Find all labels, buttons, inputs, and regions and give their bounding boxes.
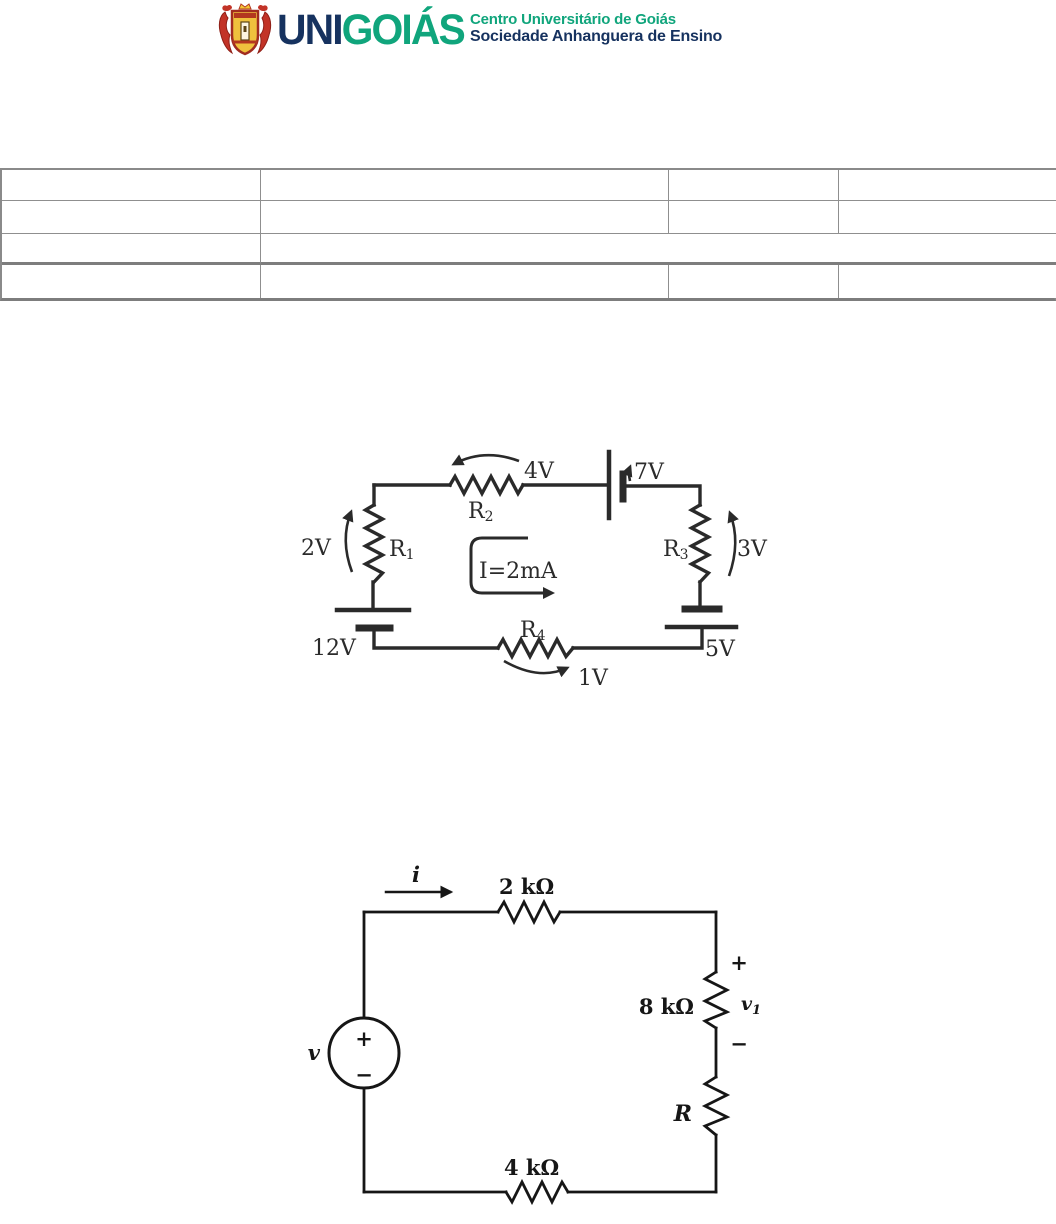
table-cell-r4c4 — [839, 265, 1056, 298]
label-r4: R4 — [520, 618, 546, 644]
university-crest-icon — [215, 2, 275, 59]
resistor-r — [705, 1077, 727, 1135]
circuit-diagram-kvl: 2V 4V 7V 3V 12V 1V 5V I=2mA R1 R2 R3 R4 — [295, 448, 775, 694]
arrow-2v — [346, 512, 352, 572]
org-name-line2: Sociedade Anhanguera de Ensino — [470, 28, 722, 45]
table-cell-r2c2 — [261, 201, 669, 234]
label-loop-current: I=2mA — [479, 559, 558, 584]
label-v1: v1 — [741, 993, 761, 1018]
label-voltage-3v: 3V — [737, 537, 768, 562]
label-r1: R1 — [389, 537, 415, 563]
label-2k: 2 kΩ — [499, 874, 554, 899]
brand-wordmark: UNIGOIÁS — [277, 7, 464, 53]
label-v1-minus: − — [730, 1031, 748, 1056]
document-page: UNIGOIÁS Centro Universitário de Goiás S… — [0, 0, 1056, 1224]
table-cell-r1c2 — [261, 170, 669, 201]
table-cell-r3c1 — [2, 234, 261, 265]
label-voltage-4v: 4V — [524, 459, 555, 484]
table-cell-r2c1 — [2, 201, 261, 234]
resistor-r3 — [692, 505, 709, 582]
circuit-diagram-source: i 2 kΩ + 8 kΩ v1 − R 4 kΩ v + − — [300, 860, 770, 1212]
label-voltage-2v: 2V — [301, 536, 332, 561]
label-source-plus: + — [355, 1026, 373, 1051]
table-cell-r4c1 — [2, 265, 261, 298]
brand-goias: GOIÁS — [342, 6, 464, 54]
label-source-minus: − — [355, 1062, 373, 1087]
resistor-r1 — [366, 505, 383, 582]
resistor-2k — [498, 902, 560, 922]
label-v1-plus: + — [730, 950, 748, 975]
resistor-r2 — [450, 477, 523, 494]
label-source-v: v — [308, 1040, 321, 1065]
label-current-i: i — [412, 862, 420, 887]
label-voltage-5v: 5V — [705, 637, 736, 662]
table-cell-r4c2 — [261, 265, 669, 298]
brand-uni: UNI — [277, 6, 342, 54]
battery-12v — [337, 610, 409, 628]
label-r2: R2 — [468, 499, 494, 525]
label-voltage-7v: 7V — [634, 460, 665, 485]
table-cell-r3c2-merged — [261, 234, 1056, 265]
org-name-block: Centro Universitário de Goiás Sociedade … — [470, 12, 722, 45]
label-voltage-12v: 12V — [312, 636, 357, 661]
arrow-3v — [729, 513, 735, 576]
arrow-1v — [504, 661, 567, 673]
resistor-4k — [506, 1182, 568, 1202]
table-cell-r1c3 — [669, 170, 839, 201]
table-cell-r1c4 — [839, 170, 1056, 201]
table-cell-r4c3 — [669, 265, 839, 298]
identification-table — [0, 168, 1056, 301]
battery-7v — [609, 452, 623, 518]
org-name-line1: Centro Universitário de Goiás — [470, 12, 722, 28]
resistor-8k — [705, 972, 727, 1028]
arrow-7v — [629, 467, 630, 481]
label-r3: R3 — [663, 537, 689, 563]
arrow-4v — [454, 455, 519, 464]
label-r-unknown: R — [673, 1101, 692, 1127]
label-8k: 8 kΩ — [639, 994, 694, 1019]
label-4k: 4 kΩ — [504, 1155, 559, 1180]
table-cell-r1c1 — [2, 170, 261, 201]
table-cell-r2c3 — [669, 201, 839, 234]
label-voltage-1v: 1V — [578, 666, 609, 691]
battery-5v — [667, 609, 736, 627]
table-cell-r2c4 — [839, 201, 1056, 234]
